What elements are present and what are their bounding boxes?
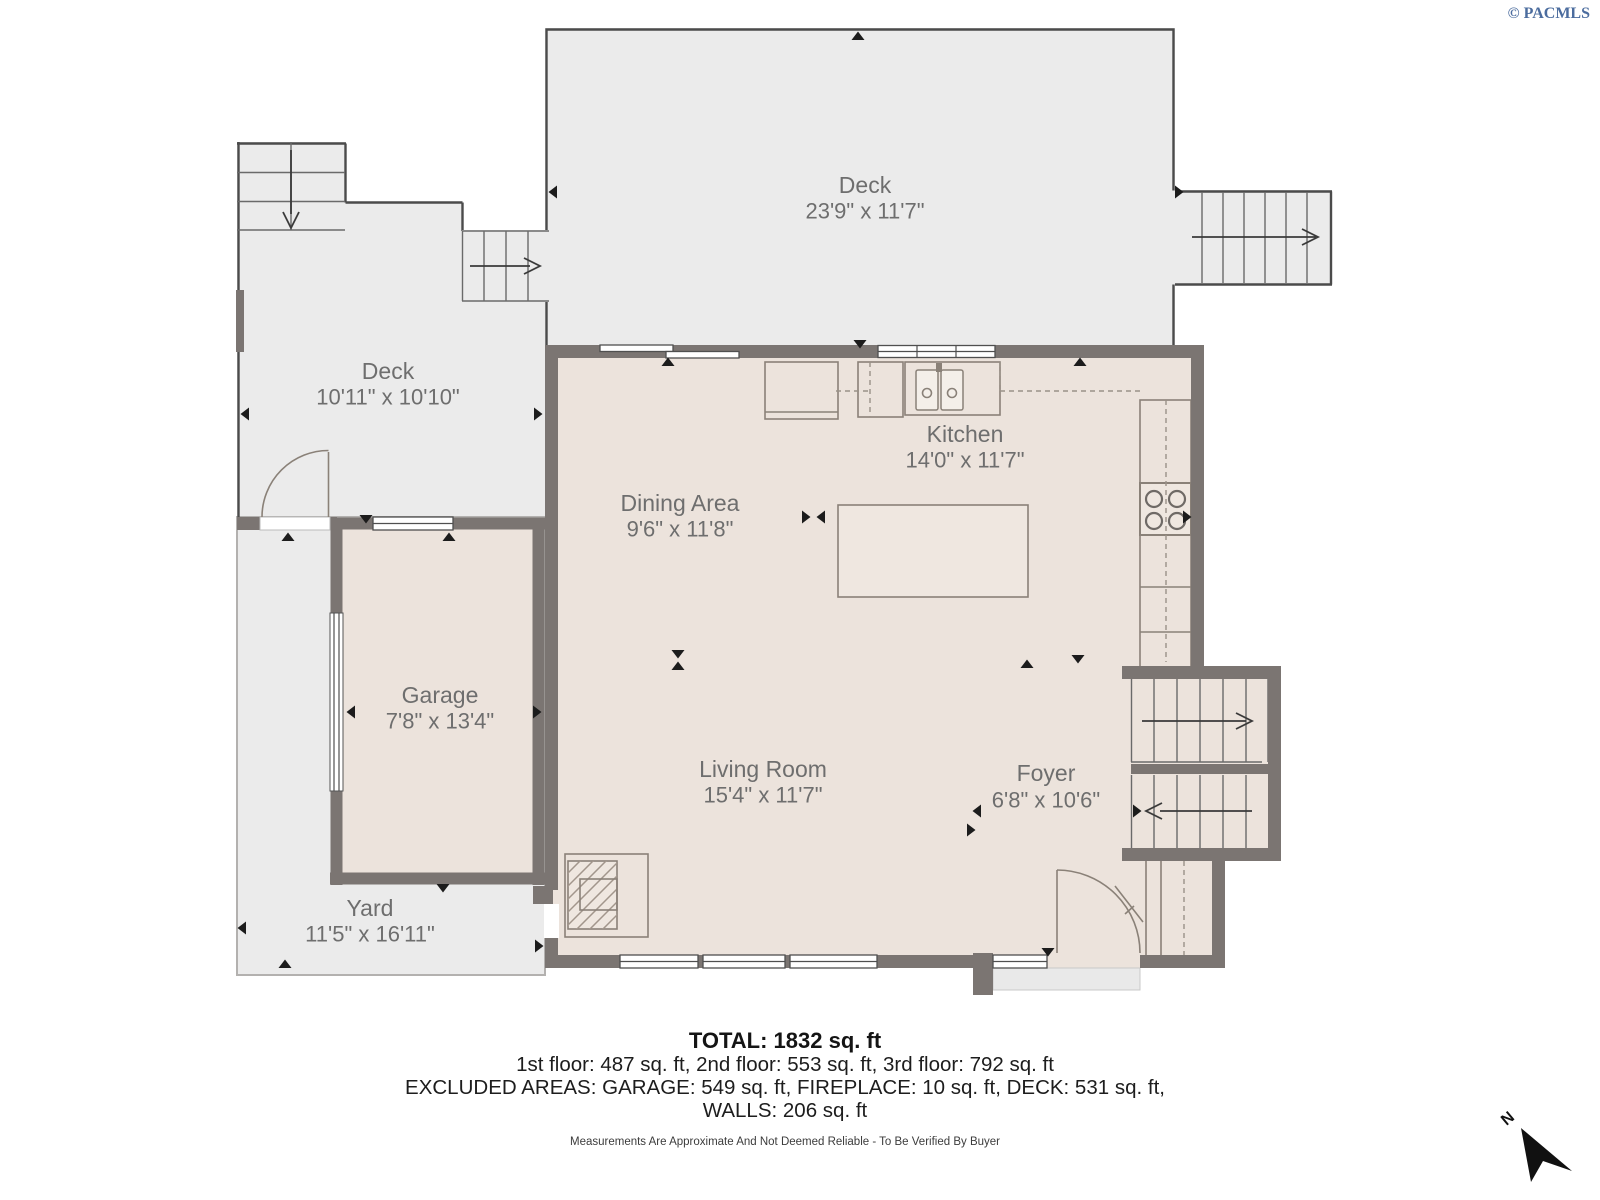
room-dims: 11'5" x 16'11" <box>305 922 435 947</box>
disclaimer: Measurements Are Approximate And Not Dee… <box>0 1136 1570 1148</box>
room-dims: 23'9" x 11'7" <box>805 199 924 224</box>
entry-porch <box>993 968 1140 990</box>
room-name: Garage <box>402 682 479 708</box>
room-label-garage: Garage 7'8" x 13'4" <box>386 682 494 734</box>
fireplace-wall-stub <box>533 886 553 904</box>
garage-door <box>330 613 343 791</box>
room-name: Deck <box>839 172 892 198</box>
room-dims: 10'11" x 10'10" <box>316 385 460 410</box>
room-name: Kitchen <box>927 421 1004 447</box>
deck-left-floor <box>237 142 545 517</box>
excluded-areas: EXCLUDED AREAS: GARAGE: 549 sq. ft, FIRE… <box>0 1076 1570 1099</box>
room-label-dining: Dining Area 9'6" x 11'8" <box>621 490 740 542</box>
room-dims: 14'0" x 11'7" <box>905 448 1024 473</box>
cabinet-icon <box>858 362 903 417</box>
walls-area: WALLS: 206 sq. ft <box>0 1099 1570 1122</box>
room-dims: 9'6" x 11'8" <box>627 517 734 542</box>
deck-connector-stairs-icon <box>462 230 549 302</box>
sliding-door-panel <box>600 345 673 352</box>
room-name: Deck <box>362 358 415 384</box>
floor-plan-page: © PACMLS <box>0 0 1600 1200</box>
entry-wall-stub <box>973 953 993 995</box>
refrigerator-icon <box>765 362 838 419</box>
room-dims: 6'8" x 10'6" <box>992 788 1100 813</box>
floor-plan-canvas: Deck 23'9" x 11'7" Deck 10'11" x 10'10" … <box>0 0 1600 1200</box>
room-name: Yard <box>347 895 394 921</box>
sliding-door-panel <box>666 352 739 359</box>
room-dims: 15'4" x 11'7" <box>703 783 822 808</box>
room-name: Dining Area <box>621 490 740 516</box>
area-summary: TOTAL: 1832 sq. ft 1st floor: 487 sq. ft… <box>0 1028 1570 1148</box>
total-area: TOTAL: 1832 sq. ft <box>0 1028 1570 1053</box>
kitchen-island <box>838 505 1028 597</box>
floor-areas: 1st floor: 487 sq. ft, 2nd floor: 553 sq… <box>0 1053 1570 1076</box>
fireplace-wall-gap <box>544 904 559 938</box>
room-dims: 7'8" x 13'4" <box>386 709 494 734</box>
room-label-living: Living Room 15'4" x 11'7" <box>699 756 827 808</box>
room-name: Foyer <box>1017 760 1076 786</box>
room-name: Living Room <box>699 756 827 782</box>
deck-door-opening <box>260 517 330 530</box>
